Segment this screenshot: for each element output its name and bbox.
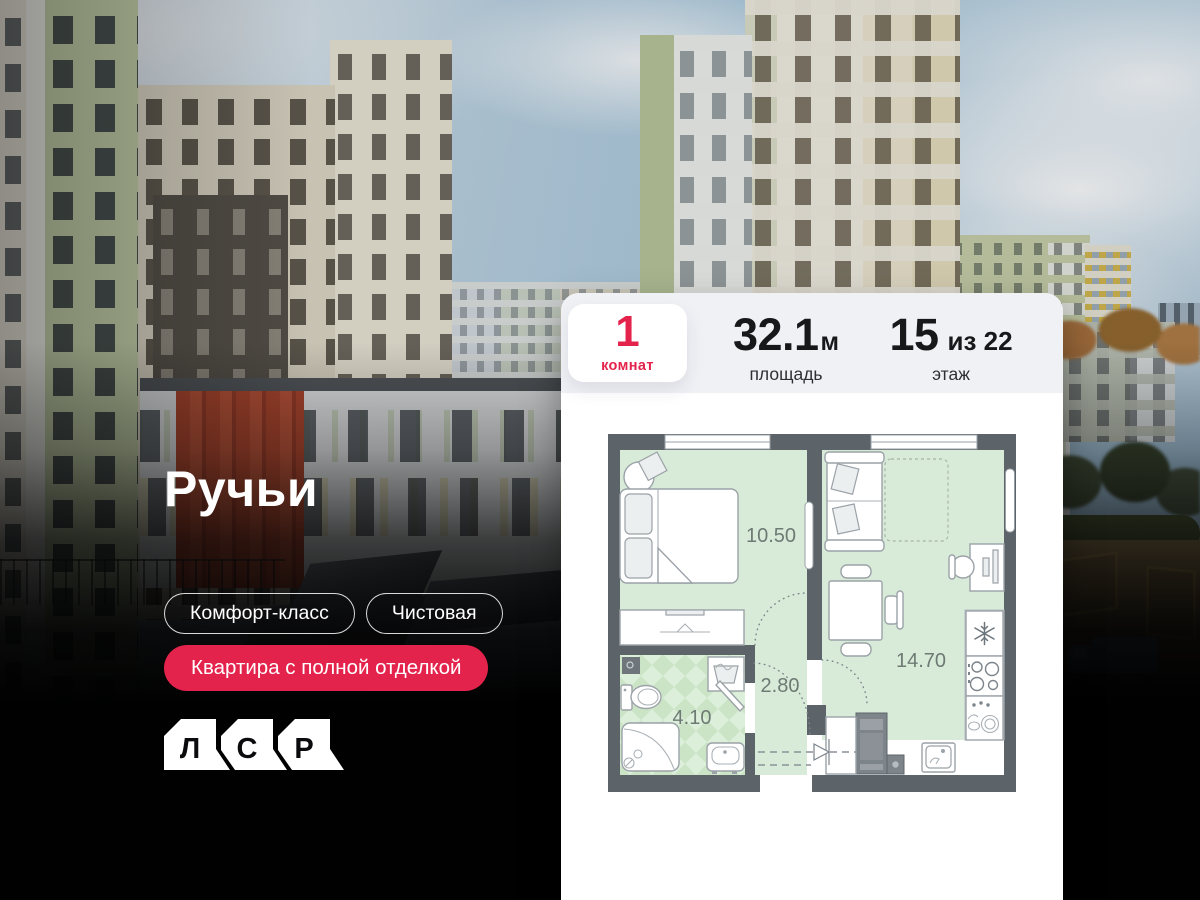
entry-sink-unit [922, 743, 955, 772]
area-label: площадь [749, 364, 822, 385]
lsr-logo[interactable]: Л С Р [164, 719, 344, 770]
rooms-card: 1 комнат [568, 304, 687, 382]
area-unit: м [821, 330, 840, 355]
shower [622, 723, 679, 771]
stove [966, 656, 1003, 696]
badge-full-finish[interactable]: Квартира с полной отделкой [164, 645, 488, 691]
wardrobe [620, 610, 744, 645]
washbasin [707, 743, 744, 774]
badge-finish[interactable]: Чистовая [366, 593, 503, 634]
badge-comfort-class[interactable]: Комфорт-класс [164, 593, 355, 634]
listing-ad: Ручьи Комфорт-класс Чистовая Квартира с … [0, 0, 1200, 900]
entry-closet [826, 717, 856, 774]
listing-panel: 1 комнат 32.1м площадь 15из 22 этаж [561, 293, 1063, 900]
logo-tile-3: Р [278, 719, 344, 770]
svg-text:Р: Р [294, 733, 313, 765]
toilet [621, 685, 661, 710]
washing-machine [708, 657, 744, 691]
sofa [825, 452, 884, 551]
page-title: Ручьи [164, 460, 318, 518]
room-area-label: 2.80 [761, 675, 800, 697]
hallway-floor [755, 645, 807, 775]
stats-strip: 1 комнат 32.1м площадь 15из 22 этаж [561, 293, 1063, 393]
area-value: 32.1 [733, 312, 819, 357]
svg-text:Л: Л [180, 733, 200, 765]
floorplan: 10.50 14.70 2.80 4.10 [608, 434, 1016, 792]
rooms-label: комнат [601, 358, 654, 374]
logo-tile-2: С [221, 719, 287, 770]
kitchen-sink [966, 696, 1003, 740]
bed [620, 489, 738, 583]
floor-value: 15 [889, 312, 938, 357]
stat-area: 32.1м площадь [701, 293, 871, 393]
svg-text:С: С [237, 733, 258, 765]
rooms-value: 1 [615, 310, 639, 354]
logo-tile-1: Л [164, 719, 230, 770]
room-area-label: 10.50 [746, 525, 796, 547]
floor-label: этаж [932, 364, 970, 385]
room-area-label: 14.70 [896, 650, 946, 672]
fridge [966, 611, 1003, 656]
vent-shaft [622, 657, 640, 674]
stat-floor: 15из 22 этаж [866, 293, 1036, 393]
floor-of: из 22 [948, 328, 1013, 354]
room-area-label: 4.10 [673, 707, 712, 729]
badge-row: Комфорт-класс Чистовая [164, 593, 503, 634]
